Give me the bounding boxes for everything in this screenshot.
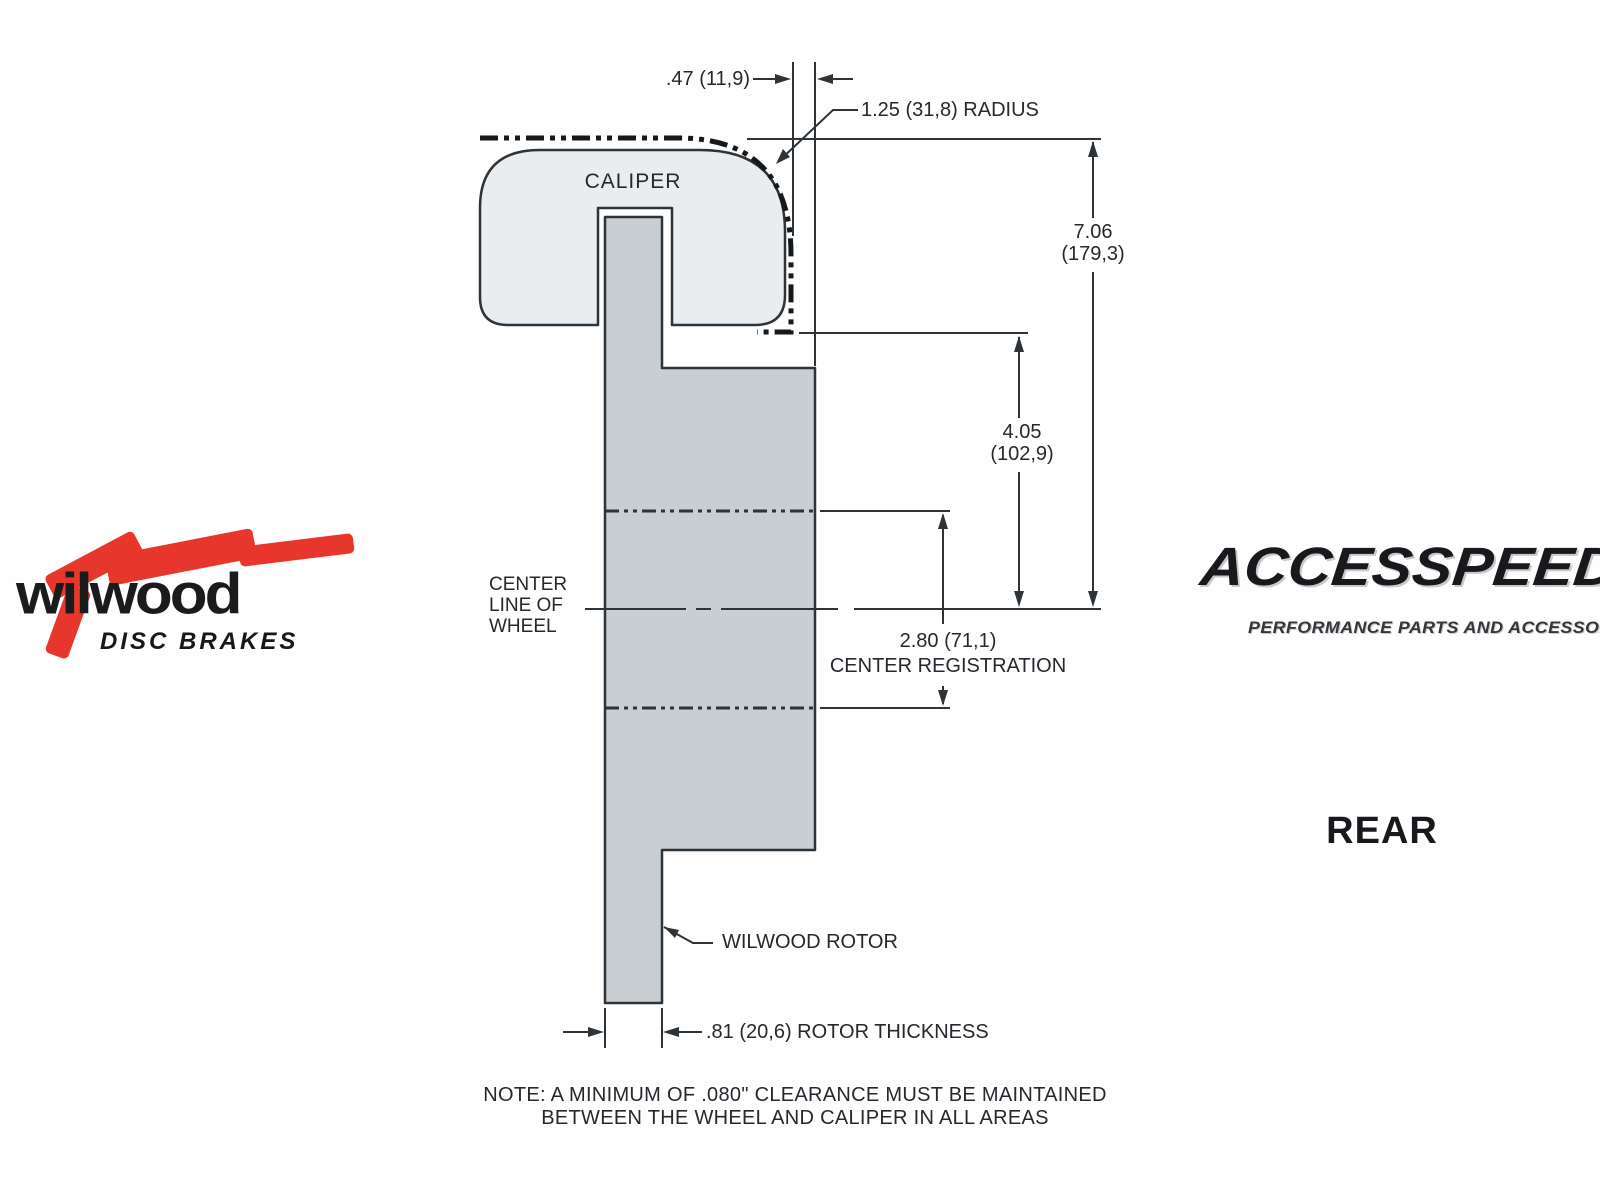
centerline-label: CENTER LINE OF WHEEL bbox=[489, 574, 567, 637]
clearance-note-line2: BETWEEN THE WHEEL AND CALIPER IN ALL ARE… bbox=[445, 1107, 1145, 1130]
overall-height-dimension: 7.06 (179,3) bbox=[1043, 221, 1143, 265]
arrow-706-up bbox=[1088, 141, 1098, 157]
view-label-rear: REAR bbox=[1302, 820, 1462, 842]
arrow-rotor-leader bbox=[664, 927, 679, 938]
centerline-label-line2: LINE OF bbox=[489, 595, 567, 616]
wilwood-logo-tagline: DISC BRAKES bbox=[100, 628, 298, 656]
arrow-081-right bbox=[588, 1027, 604, 1037]
overall-height-inches: 7.06 bbox=[1043, 221, 1143, 243]
rotor-label: WILWOOD ROTOR bbox=[722, 931, 898, 953]
registration-dimension: 2.80 (71,1) bbox=[858, 630, 1038, 652]
arrow-280-down bbox=[938, 690, 948, 706]
arrow-081-left bbox=[663, 1027, 679, 1037]
accesspeed-logo-tagline: PERFORMANCE PARTS AND ACCESSORIES bbox=[1248, 618, 1600, 638]
caliper-height-mm: (102,9) bbox=[972, 443, 1072, 465]
clearance-note-line1: NOTE: A MINIMUM OF .080" CLEARANCE MUST … bbox=[445, 1084, 1145, 1107]
accesspeed-logo-wordmark: ACCESSPEED bbox=[1197, 536, 1600, 598]
arrow-047-left bbox=[817, 74, 833, 84]
registration-label: CENTER REGISTRATION bbox=[818, 655, 1078, 677]
caliper-height-dimension: 4.05 (102,9) bbox=[972, 421, 1072, 465]
radius-dimension: 1.25 (31,8) RADIUS bbox=[861, 99, 1039, 121]
arrow-405-down bbox=[1014, 591, 1024, 607]
arrow-047-right bbox=[775, 74, 791, 84]
brake-clearance-diagram-page: CALIPER .47 (11,9) 1.25 (31,8) RADIUS 7.… bbox=[0, 0, 1600, 1200]
caliper-label: CALIPER bbox=[578, 171, 688, 193]
clearance-note: NOTE: A MINIMUM OF .080" CLEARANCE MUST … bbox=[445, 1084, 1145, 1130]
caliper-height-inches: 4.05 bbox=[972, 421, 1072, 443]
arrow-405-up bbox=[1014, 336, 1024, 352]
centerline-label-line3: WHEEL bbox=[489, 616, 567, 637]
centerline-label-line1: CENTER bbox=[489, 574, 567, 595]
arrow-706-down bbox=[1088, 591, 1098, 607]
thickness-dimension: .81 (20,6) ROTOR THICKNESS bbox=[706, 1021, 989, 1043]
wilwood-logo-wordmark: wilwood bbox=[16, 562, 240, 627]
leader-radius bbox=[779, 110, 858, 161]
wilwood-logo: wilwood DISC BRAKES bbox=[14, 518, 324, 668]
offset-dimension: .47 (11,9) bbox=[630, 68, 750, 90]
overall-height-mm: (179,3) bbox=[1043, 243, 1143, 265]
accesspeed-logo: ACCESSPEED PERFORMANCE PARTS AND ACCESSO… bbox=[1198, 536, 1600, 656]
arrow-280-up bbox=[938, 513, 948, 529]
